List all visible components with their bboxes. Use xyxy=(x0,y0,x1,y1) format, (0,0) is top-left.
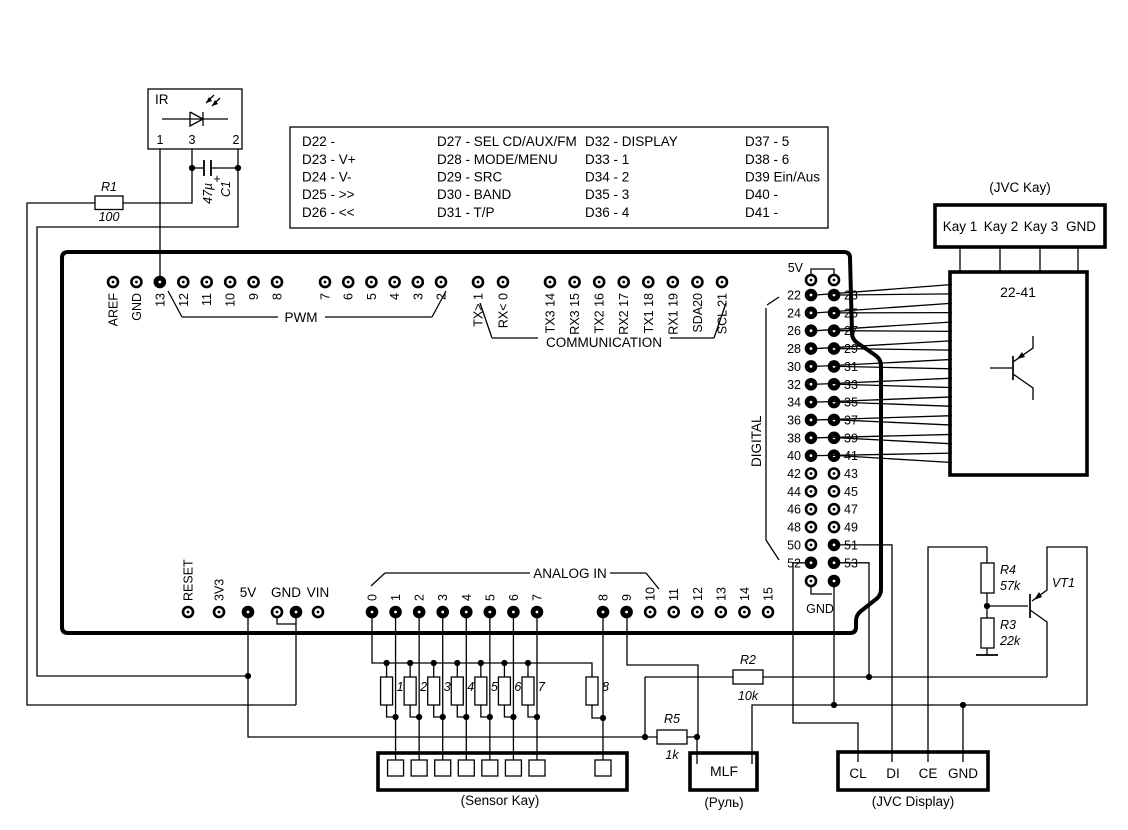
pin-3V3 xyxy=(214,607,224,617)
pin-6: 6 xyxy=(342,277,356,300)
pin-label: 8 xyxy=(271,293,285,300)
pin-label: 9 xyxy=(247,293,261,300)
pin-label: 12 xyxy=(691,587,705,601)
ir-label: IR xyxy=(155,92,169,107)
pin-GND-b xyxy=(291,607,301,617)
jvc-kay-pin-3: Kay 3 xyxy=(1024,219,1059,234)
pin-label: 48 xyxy=(787,521,801,535)
schematic-canvas: IR 1 3 2 R1 100 + C1 47µ PWM COMMUNICATI… xyxy=(0,0,1128,830)
ir-pin-3: 3 xyxy=(189,133,196,147)
sensor-key-pad xyxy=(458,760,474,776)
pin-SCL 21: SCL 21 xyxy=(715,277,729,334)
pin-label: 12 xyxy=(177,293,191,307)
pin-label: 51 xyxy=(844,538,858,552)
pin-31 xyxy=(829,361,839,371)
pin-label: 0 xyxy=(366,594,380,601)
driver-box-title: 22-41 xyxy=(1000,284,1036,300)
pin-32 xyxy=(806,379,816,389)
sensor-resistor-number: 1 xyxy=(397,680,404,694)
pin-label: 46 xyxy=(787,503,801,517)
pin-7: 7 xyxy=(530,594,544,617)
pin-45 xyxy=(829,486,839,496)
jvc-display-pin-ce: CE xyxy=(919,766,938,781)
table-cell: D23 - V+ xyxy=(302,152,356,167)
sensor-key-pad xyxy=(388,760,404,776)
pin-label: 22 xyxy=(787,289,801,303)
jvc-display-pin-di: DI xyxy=(886,766,900,781)
pwm-label: PWM xyxy=(285,310,318,325)
pin-label: 42 xyxy=(787,467,801,481)
pin-5: 5 xyxy=(365,277,379,300)
pin-RESET xyxy=(183,607,193,617)
r2-value: 10k xyxy=(738,689,759,703)
pin-50 xyxy=(806,540,816,550)
5v-label: 5V xyxy=(240,585,257,600)
pin-label: 3 xyxy=(411,293,425,300)
table-cell: D36 - 4 xyxy=(585,205,630,220)
pin-label: 38 xyxy=(787,431,801,445)
header-5v-label: 5V xyxy=(788,261,804,275)
pin-TX1 18: TX1 18 xyxy=(642,277,656,333)
pin-label: 15 xyxy=(761,587,775,601)
junction-dot xyxy=(392,714,398,720)
pin-2: 2 xyxy=(435,277,449,300)
pin-13: 13 xyxy=(714,587,728,617)
table-cell: D40 - xyxy=(745,187,778,202)
pin-label: 7 xyxy=(319,293,333,300)
analog-pin-row-right: 89101112131415 xyxy=(597,587,776,617)
pin-1: 1 xyxy=(389,594,403,617)
pin-44 xyxy=(806,486,816,496)
junction-dot xyxy=(525,660,531,666)
pin-label: AREF xyxy=(107,293,121,327)
pin-3: 3 xyxy=(411,277,425,300)
table-cell: D33 - 1 xyxy=(585,152,629,167)
pin-hdr-gnd-a xyxy=(806,576,816,586)
pin-label: RX3 15 xyxy=(568,293,582,335)
r4-value: 57k xyxy=(1000,579,1021,593)
pin-14: 14 xyxy=(738,587,752,617)
sensor-resistor-number: 4 xyxy=(467,680,474,694)
pin-label: 6 xyxy=(507,594,521,601)
pin-5V xyxy=(243,607,253,617)
table-cell: D25 - >> xyxy=(302,187,355,202)
sensor-resistor-number: 3 xyxy=(444,680,451,694)
r5-name: R5 xyxy=(664,712,680,726)
pin-RX< 0: RX< 0 xyxy=(497,277,511,328)
pin-46 xyxy=(806,504,816,514)
pin-GND: GND xyxy=(130,277,144,321)
pin-label: 11 xyxy=(200,293,214,306)
pin-label: 49 xyxy=(844,521,858,535)
sensor-resistor-number: 8 xyxy=(602,680,609,694)
schematic-page: IR 1 3 2 R1 100 + C1 47µ PWM COMMUNICATI… xyxy=(0,0,1128,830)
pin-RX1 19: RX1 19 xyxy=(666,277,680,335)
pin-label: 53 xyxy=(844,556,858,570)
jvc-display-pin-gnd: GND xyxy=(948,766,978,781)
sensor-resistor-number: 2 xyxy=(419,680,427,694)
pin-label: 32 xyxy=(787,378,801,392)
pin-label: 30 xyxy=(787,360,801,374)
pin-10: 10 xyxy=(224,277,238,307)
pin-label: RX1 19 xyxy=(666,293,680,335)
junction-dot xyxy=(487,714,493,720)
pin-label: 44 xyxy=(787,485,801,499)
pin-label: 26 xyxy=(787,324,801,338)
pin-26 xyxy=(806,326,816,336)
pin-label: 52 xyxy=(787,556,801,570)
reset-label: RESET xyxy=(182,559,196,601)
sensor-resistor-number: 5 xyxy=(491,680,498,694)
pin-label: 36 xyxy=(787,413,801,427)
pin-2: 2 xyxy=(413,594,427,617)
3v3-label: 3V3 xyxy=(213,579,227,601)
pin-label: 2 xyxy=(435,293,449,300)
header-gnd-label: GND xyxy=(806,602,834,616)
junction-dot xyxy=(454,660,460,666)
table-cell: D39 Ein/Aus xyxy=(745,170,820,185)
pin-label: 50 xyxy=(787,538,801,552)
pin-label: 5 xyxy=(365,293,379,300)
r1-name: R1 xyxy=(101,180,117,194)
c1-name: C1 xyxy=(219,181,233,197)
pin-label: 11 xyxy=(667,588,681,601)
pin-9: 9 xyxy=(620,594,634,617)
pin-AREF: AREF xyxy=(107,277,121,326)
driver-22-41-box xyxy=(950,272,1087,475)
jvc-kay-caption: (JVC Kay) xyxy=(989,180,1051,195)
pin-52 xyxy=(806,558,816,568)
junction-dot xyxy=(440,714,446,720)
table-cell: D34 - 2 xyxy=(585,170,629,185)
junction-dot xyxy=(383,660,389,666)
sensor-key-pad xyxy=(435,760,451,776)
table-cell: D28 - MODE/MENU xyxy=(437,152,558,167)
comm-pin-row-right: TX3 14RX3 15TX2 16RX2 17TX1 18RX1 19SDA2… xyxy=(544,277,730,335)
pin-5: 5 xyxy=(483,594,497,617)
sensor-kay-caption: (Sensor Kay) xyxy=(461,793,540,808)
pin-label: 13 xyxy=(153,293,167,307)
sensor-key-pad xyxy=(482,760,498,776)
pin-TX2 16: TX2 16 xyxy=(593,277,607,333)
pin-label: TX2 16 xyxy=(593,293,607,333)
r3-name: R3 xyxy=(1000,618,1016,632)
pin-11: 11 xyxy=(667,588,681,617)
r2-name: R2 xyxy=(740,653,756,667)
table-cell: D26 - << xyxy=(302,205,355,220)
pin-label: 9 xyxy=(620,594,634,601)
table-cell: D31 - T/P xyxy=(437,205,495,220)
pin-22 xyxy=(806,290,816,300)
pin-48 xyxy=(806,522,816,532)
junction-dot xyxy=(463,714,469,720)
table-cell: D29 - SRC xyxy=(437,170,503,185)
pin-15: 15 xyxy=(761,587,775,617)
jvc-kay-pin-2: Kay 2 xyxy=(984,219,1019,234)
pin-label: 34 xyxy=(787,396,801,410)
jvc-kay-pin-1: Kay 1 xyxy=(943,219,978,234)
pin-VIN xyxy=(313,607,323,617)
mlf-title: MLF xyxy=(710,763,738,779)
pin-label: 8 xyxy=(597,594,611,601)
pin-SDA20: SDA20 xyxy=(691,277,705,333)
pin-23 xyxy=(829,290,839,300)
pin-49 xyxy=(829,522,839,532)
pin-label: 2 xyxy=(413,594,427,601)
pin-4: 4 xyxy=(388,277,402,300)
pin-11: 11 xyxy=(200,277,214,306)
table-cell: D30 - BAND xyxy=(437,187,512,202)
resistor-r4 xyxy=(981,563,994,593)
pin-29 xyxy=(829,344,839,354)
pin-RX3 15: RX3 15 xyxy=(568,277,582,335)
pin-hdr-5v-a xyxy=(806,275,816,285)
pin-25 xyxy=(829,308,839,318)
wires xyxy=(27,89,1105,790)
pin-label: 28 xyxy=(787,342,801,356)
sensor-key-pad xyxy=(595,760,611,776)
sensor-key-pad xyxy=(529,760,545,776)
sensor-resistor-number: 7 xyxy=(538,680,546,694)
pin-40 xyxy=(806,451,816,461)
jvc-kay-pin-gnd: GND xyxy=(1066,219,1096,234)
pin-9: 9 xyxy=(247,277,261,300)
pin-label: 6 xyxy=(342,293,356,300)
junction-dot xyxy=(478,660,484,666)
junction-dot xyxy=(534,714,540,720)
pin-label: 43 xyxy=(844,467,858,481)
pin-label: 10 xyxy=(644,587,658,601)
pin-label: 5 xyxy=(483,594,497,601)
pin-38 xyxy=(806,433,816,443)
pwm-pin-row-left: AREFGND1312111098 xyxy=(107,277,285,326)
sensor-key-pad xyxy=(505,760,521,776)
pin-RX2 17: RX2 17 xyxy=(617,277,631,335)
pin-label: 45 xyxy=(844,485,858,499)
pin-label: 47 xyxy=(844,503,858,517)
pwm-pin-row-right: 765432 xyxy=(319,277,449,300)
pin-label: 4 xyxy=(388,293,402,300)
jvc-display-pin-cl: CL xyxy=(849,766,867,781)
pin-label: GND xyxy=(130,293,144,321)
pin-label: RX2 17 xyxy=(617,293,631,335)
ir-pin-1: 1 xyxy=(157,133,164,147)
pin-30 xyxy=(806,361,816,371)
r3-value: 22k xyxy=(999,634,1021,648)
pin-13: 13 xyxy=(153,277,167,307)
pin-27 xyxy=(829,326,839,336)
pin-51 xyxy=(829,540,839,550)
table-cell: D35 - 3 xyxy=(585,187,629,202)
table-cell: D22 - xyxy=(302,134,335,149)
table-cell: D37 - 5 xyxy=(745,134,789,149)
vt1-name: VT1 xyxy=(1052,576,1075,590)
junction-dot xyxy=(416,714,422,720)
pin-TX3 14: TX3 14 xyxy=(544,277,558,333)
junction-dot xyxy=(510,714,516,720)
table-cell: D41 - xyxy=(745,205,778,220)
pin-hdr-gnd-b xyxy=(829,576,839,586)
pin-GND-a xyxy=(272,607,282,617)
communication-label: COMMUNICATION xyxy=(546,335,662,350)
analog-in-label: ANALOG IN xyxy=(533,566,607,581)
pin-24 xyxy=(806,308,816,318)
pin-hdr-5v-b xyxy=(829,275,839,285)
junction-dot xyxy=(407,660,413,666)
pin-label: 3 xyxy=(436,594,450,601)
table-cell: D32 - DISPLAY xyxy=(585,134,678,149)
pin-42 xyxy=(806,469,816,479)
digital-header: 2223242526272829303132333435363738394041… xyxy=(787,275,858,586)
pin-label: 1 xyxy=(389,594,403,601)
ir-pin-2: 2 xyxy=(233,133,240,147)
digital-label: DIGITAL xyxy=(749,415,764,467)
r4-name: R4 xyxy=(1000,563,1016,577)
pin-43 xyxy=(829,469,839,479)
table-cell: D38 - 6 xyxy=(745,152,789,167)
pin-label: 4 xyxy=(460,594,474,601)
resistor-r1 xyxy=(95,196,123,210)
junction-dot xyxy=(501,660,507,666)
analog-pin-row-left: 01234567 xyxy=(366,594,545,617)
pin-8: 8 xyxy=(597,594,611,617)
pin-TX> 1: TX> 1 xyxy=(472,277,486,327)
pin-0: 0 xyxy=(366,594,380,617)
power-pin-row xyxy=(183,607,323,617)
pin-36 xyxy=(806,415,816,425)
pin-label: 13 xyxy=(714,587,728,601)
pin-label: TX> 1 xyxy=(472,293,486,327)
mlf-caption: (Руль) xyxy=(704,795,743,810)
pin-label: 24 xyxy=(787,306,801,320)
pin-label: RX< 0 xyxy=(497,293,511,328)
r1-value: 100 xyxy=(99,210,120,224)
junction-dot xyxy=(431,660,437,666)
junction-dot xyxy=(600,715,606,721)
pin-3: 3 xyxy=(436,594,450,617)
gnd-label: GND xyxy=(271,585,301,600)
pin-8: 8 xyxy=(271,277,285,300)
sensor-key-pad xyxy=(411,760,427,776)
c1-value: 47µ xyxy=(201,183,215,204)
pin-12: 12 xyxy=(691,587,705,617)
pin-label: 7 xyxy=(530,594,544,601)
resistor-r3 xyxy=(981,618,994,648)
pin-label: 14 xyxy=(738,587,752,601)
pin-6: 6 xyxy=(507,594,521,617)
pin-12: 12 xyxy=(177,277,191,307)
pin-label: 40 xyxy=(787,449,801,463)
pin-label: TX3 14 xyxy=(544,293,558,333)
pin-label: SDA20 xyxy=(691,293,705,333)
pin-label: TX1 18 xyxy=(642,293,656,333)
pin-7: 7 xyxy=(319,277,333,300)
vin-label: VIN xyxy=(307,585,330,600)
r5-value: 1k xyxy=(665,748,679,762)
resistor-r5 xyxy=(657,730,687,744)
table-cell: D24 - V- xyxy=(302,170,352,185)
pin-4: 4 xyxy=(460,594,474,617)
pin-34 xyxy=(806,397,816,407)
pin-47 xyxy=(829,504,839,514)
comm-pin-row-left: TX> 1RX< 0 xyxy=(472,277,511,328)
resistor-r2 xyxy=(733,670,763,684)
pin-label: SCL 21 xyxy=(715,293,729,334)
jvc-display-caption: (JVC Display) xyxy=(872,794,955,809)
pin-28 xyxy=(806,344,816,354)
table-cell: D27 - SEL CD/AUX/FM xyxy=(437,134,577,149)
pin-53 xyxy=(829,558,839,568)
pin-label: 10 xyxy=(224,293,238,307)
sensor-resistor-number: 6 xyxy=(514,680,521,694)
pin-10: 10 xyxy=(644,587,658,617)
